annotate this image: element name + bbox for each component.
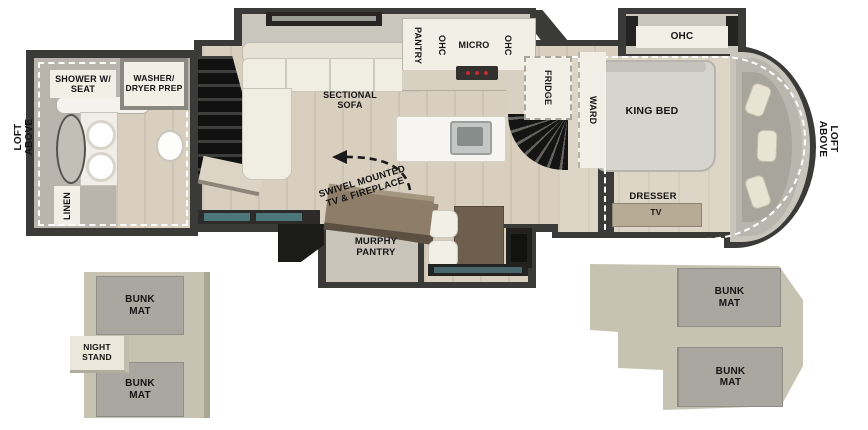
- bunk-mat-label: BUNK MAT: [707, 286, 753, 308]
- burner-knob: [466, 71, 470, 75]
- sink-top: [86, 120, 116, 150]
- mirror: [56, 114, 86, 184]
- tv-label: TV: [612, 206, 700, 220]
- island-sink-basin: [457, 127, 483, 146]
- sofa-seats: [242, 58, 424, 92]
- burner-knob: [475, 71, 479, 75]
- sofa-chaise: [242, 88, 292, 180]
- toilet: [156, 130, 184, 162]
- bunk-mat-label: BUNK MAT: [708, 366, 754, 388]
- floorplan: LOFT ABOVE SHOWER W/ SEAT WASHER/ DRYER …: [0, 0, 868, 430]
- king-bed-label: KING BED: [602, 104, 702, 120]
- ohc-left-label: OHC: [434, 24, 450, 66]
- sofa-slide-window-glass: [272, 16, 376, 21]
- micro-label: MICRO: [452, 38, 496, 52]
- linen-label: LINEN: [57, 186, 77, 226]
- night-stand: NIGHT STAND: [70, 336, 129, 373]
- dinette-table: [454, 206, 504, 270]
- pillow: [756, 130, 777, 163]
- night-stand-label: NIGHT STAND: [75, 343, 119, 362]
- bunk-mat-left-top: BUNK MAT: [96, 276, 184, 335]
- washer-dryer-prep-cabinet: WASHER/ DRYER PREP: [120, 58, 188, 110]
- murphy-pantry-label: MURPHY PANTRY: [336, 236, 416, 260]
- living-window: [204, 213, 250, 221]
- side-window-glass: [511, 234, 527, 262]
- bunk-mat-right-top: BUNK MAT: [677, 268, 781, 327]
- pantry-label: PANTRY: [406, 20, 430, 72]
- bathroom-wood-floor: [116, 110, 190, 228]
- ohc-bedroom-label: OHC: [636, 26, 728, 48]
- bunk-mat-right-bottom: BUNK MAT: [677, 347, 783, 407]
- bunk-loft-right: BUNK MAT BUNK MAT: [588, 258, 806, 414]
- loft-above-right-label: LOFT ABOVE: [815, 109, 841, 169]
- sink-bottom: [86, 152, 116, 182]
- dresser-label: DRESSER: [620, 191, 686, 203]
- king-bed-headboard: [598, 62, 706, 72]
- loft-above-left-label: LOFT ABOVE: [11, 107, 37, 167]
- living-window: [256, 213, 302, 221]
- bunk-mat-label: BUNK MAT: [117, 294, 163, 316]
- bunk-mat-label: BUNK MAT: [117, 378, 163, 400]
- burner-knob: [484, 71, 488, 75]
- ohc-right-label: OHC: [500, 24, 516, 66]
- dinette-chair-top: [428, 210, 458, 238]
- fridge-label: FRIDGE: [524, 56, 572, 120]
- cooktop: [456, 66, 498, 80]
- shower-label: SHOWER W/ SEAT: [50, 70, 116, 98]
- dinette-window-glass: [434, 267, 522, 273]
- sectional-sofa-label: SECTIONAL SOFA: [312, 88, 388, 112]
